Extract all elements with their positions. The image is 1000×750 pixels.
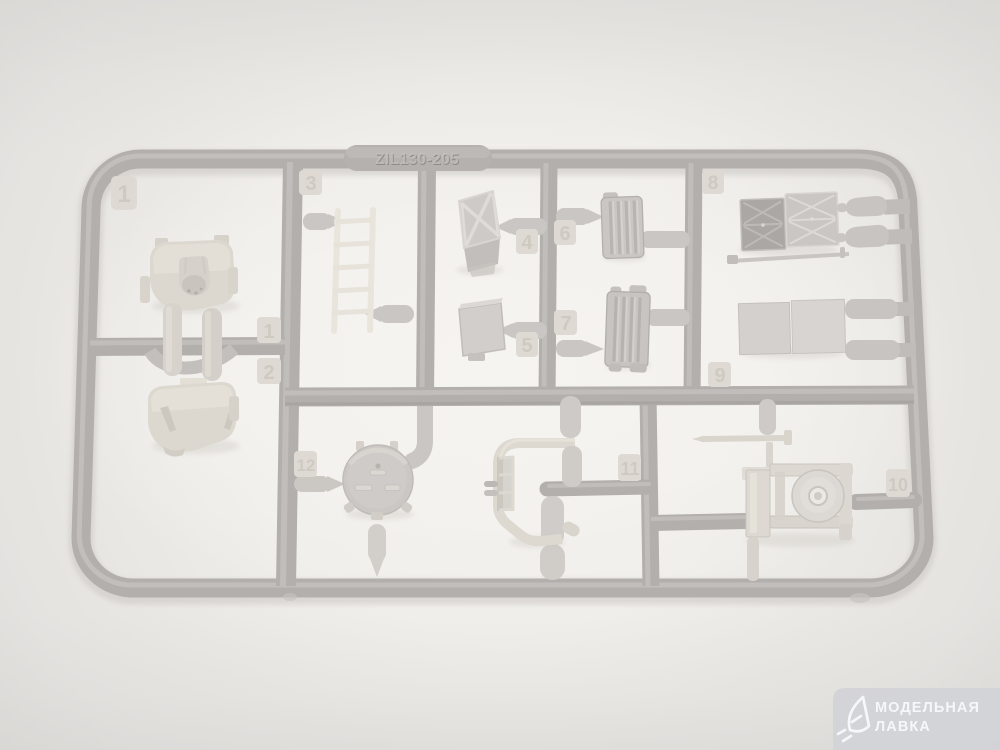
svg-text:4: 4 [521, 232, 533, 254]
svg-text:6: 6 [559, 223, 570, 245]
svg-text:МОДЕЛЬНАЯ: МОДЕЛЬНАЯ [875, 700, 980, 716]
svg-text:7: 7 [560, 313, 571, 335]
svg-text:5: 5 [521, 335, 532, 357]
svg-text:9: 9 [714, 365, 725, 387]
svg-text:ZIL130-205: ZIL130-205 [375, 151, 459, 168]
svg-text:11: 11 [620, 459, 639, 479]
svg-text:10: 10 [888, 475, 908, 495]
svg-text:1: 1 [263, 321, 274, 343]
svg-text:8: 8 [708, 173, 719, 194]
svg-text:3: 3 [305, 173, 316, 195]
svg-text:2: 2 [263, 362, 274, 384]
svg-text:12: 12 [297, 456, 316, 475]
svg-text:ЛАВКА: ЛАВКА [875, 719, 931, 735]
svg-text:1: 1 [117, 181, 130, 208]
